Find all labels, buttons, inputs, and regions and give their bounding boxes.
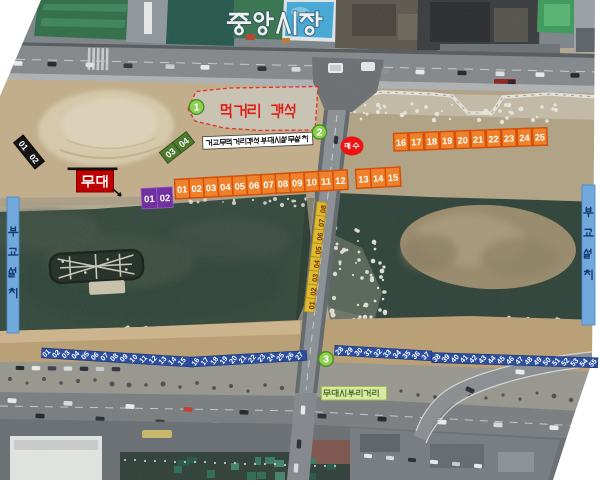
svg-text:16: 16 [396, 138, 407, 148]
svg-text:11: 11 [321, 176, 331, 187]
svg-text:04: 04 [220, 182, 232, 193]
svg-text:14: 14 [373, 173, 385, 184]
svg-text:07: 07 [317, 218, 327, 227]
svg-text:02: 02 [308, 287, 318, 296]
svg-text:05: 05 [234, 181, 245, 192]
svg-text:03: 03 [206, 183, 217, 194]
svg-text:01: 01 [144, 194, 156, 206]
svg-text:1: 1 [194, 102, 200, 114]
svg-text:01: 01 [177, 184, 188, 195]
svg-text:05: 05 [313, 246, 323, 255]
svg-text:03: 03 [310, 273, 320, 282]
svg-text:08: 08 [318, 205, 328, 214]
svg-text:25: 25 [535, 132, 546, 142]
svg-text:22: 22 [488, 134, 499, 144]
svg-text:08: 08 [277, 179, 288, 190]
svg-text:01: 01 [307, 301, 317, 310]
svg-text:07: 07 [263, 180, 274, 191]
svg-text:3: 3 [323, 354, 329, 366]
svg-text:06: 06 [249, 180, 260, 191]
svg-text:15: 15 [388, 173, 399, 184]
svg-text:04: 04 [312, 260, 322, 269]
svg-text:21: 21 [473, 135, 484, 145]
svg-text:02: 02 [191, 184, 202, 195]
svg-text:20: 20 [457, 135, 468, 145]
svg-text:06: 06 [315, 232, 325, 241]
svg-text:19: 19 [442, 136, 453, 146]
svg-text:23: 23 [504, 133, 515, 143]
svg-text:09: 09 [292, 178, 303, 189]
svg-text:18: 18 [427, 136, 438, 146]
svg-text:10: 10 [306, 177, 317, 188]
svg-text:02: 02 [159, 193, 170, 205]
svg-text:17: 17 [411, 137, 422, 147]
svg-text:13: 13 [358, 174, 369, 185]
svg-text:12: 12 [335, 176, 346, 187]
svg-text:24: 24 [519, 133, 530, 143]
svg-text:2: 2 [317, 127, 323, 139]
